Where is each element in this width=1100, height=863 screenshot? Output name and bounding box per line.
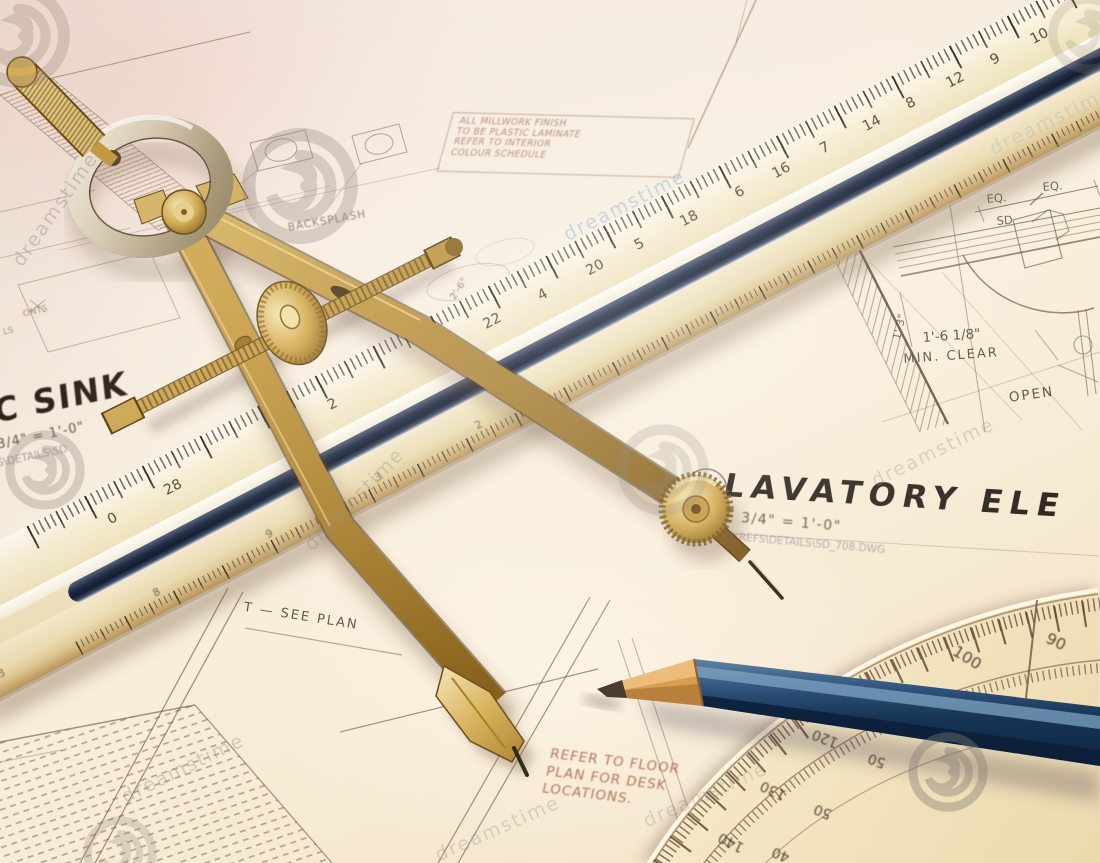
compass-thumbwheel — [244, 270, 339, 375]
pencil-facet-highlight — [695, 666, 1100, 729]
sink-note-fragment: ONTS — [22, 304, 49, 320]
ruler-number: 7 — [817, 139, 833, 157]
ruler-number: 9 — [987, 50, 1003, 68]
protractor-body — [646, 590, 1100, 863]
protractor-number: 140 — [716, 829, 747, 855]
spiral-watermark-icon — [10, 435, 80, 505]
compass-handle — [24, 74, 94, 146]
height-dimension: 1'-3" — [890, 313, 909, 341]
floor-note-line: LOCATIONS. — [540, 780, 673, 813]
backsplash-label: BACKSPLASH — [287, 208, 367, 234]
min-clear-label: MIN. CLEAR — [903, 345, 999, 367]
hinge-left-wing — [134, 190, 172, 224]
protractor-90-tick — [1026, 600, 1037, 698]
ruler-major-ticks — [26, 0, 1100, 549]
protractor-fine-ticks — [658, 604, 1100, 863]
ruler-number: 0 — [105, 510, 121, 528]
protractor-number: 130 — [758, 777, 789, 803]
protractor-number: 50 — [866, 749, 888, 770]
clear-dimension: 1'-6 1/8" — [922, 326, 981, 346]
lavatory-title: LAVATORY ELE — [720, 466, 1069, 524]
compass-blade — [436, 666, 524, 762]
rod-left-cap — [108, 408, 138, 423]
thumbwheel-knurl — [250, 276, 335, 371]
protractor-edge-line — [650, 594, 1098, 863]
protractor-number: 120 — [810, 726, 841, 751]
rod-cap-face — [445, 238, 463, 256]
compass-needle-point — [514, 748, 527, 775]
handle-knurl-texture — [24, 74, 94, 146]
compass-slot — [328, 282, 362, 308]
watermark-text: dreamstime — [8, 148, 103, 270]
pencil-body — [694, 659, 1100, 766]
ruler-bevel-number: 3 — [0, 666, 7, 681]
spiral-watermark-icon — [88, 821, 153, 863]
photo-stage: C SINK 3/4" = 1'-0" S\DETAILS\SD ONTS LS… — [0, 0, 1100, 863]
soap-dispenser-label: SD — [996, 213, 1013, 228]
compass-knurled-nut — [662, 475, 730, 543]
sink-detail-title: C SINK — [0, 364, 130, 431]
spiral-watermark-icon — [623, 430, 704, 511]
compass-needle-holder — [684, 500, 745, 556]
spiral-watermark-icon — [0, 0, 64, 82]
watermark-text: dreamstime — [868, 413, 998, 492]
spiral-watermark-icon — [249, 135, 352, 238]
pencil-facet-shadow — [700, 695, 1100, 766]
rod-right-cap — [430, 247, 454, 259]
handle-end-cap — [7, 57, 37, 87]
floor-note: REFER TO FLOOR PLAN FOR DESK LOCATIONS. — [540, 746, 681, 813]
hinge-right-wing — [196, 174, 248, 212]
protractor-bevel-edge — [646, 590, 1098, 863]
pencil-wood-cone — [621, 659, 703, 706]
compass-hinge — [162, 190, 206, 234]
protractor-major-ticks — [664, 612, 1100, 863]
ruler-number: 2 — [325, 395, 341, 413]
sink-detail-cad-path: S\DETAILS\SD — [0, 443, 69, 470]
protractor-number: 90 — [1043, 628, 1070, 654]
protractor-number-arc — [760, 726, 1100, 863]
spiral-watermark-icon — [913, 737, 983, 807]
open-label: OPEN — [1008, 384, 1055, 406]
floor-note-line: PLAN FOR DESK — [544, 763, 677, 796]
compass-finger-loop — [65, 112, 235, 262]
protractor-number: 100 — [949, 641, 985, 673]
see-plan-note: T — SEE PLAN — [243, 600, 360, 633]
ruler-number: 4 — [535, 286, 551, 304]
architect-scale-ruler: 0 28 2 22 4 20 5 18 6 16 7 14 8 12 9 10 … — [0, 0, 1100, 706]
loop-rivet — [105, 150, 121, 166]
sink-note-fragment-2: LS — [2, 325, 15, 337]
millwork-note-box: ALL MILLWORK FINISH TO BE PLASTIC LAMINA… — [436, 112, 694, 178]
ruler-number: 8 — [903, 94, 919, 112]
pencil — [581, 659, 1100, 802]
protractor-number: 40 — [770, 843, 793, 863]
watermark-text: dreamstime — [432, 791, 563, 863]
ruler-number: 6 — [732, 183, 748, 201]
ruler-number: 5 — [632, 235, 648, 253]
sink-detail-scale: 3/4" = 1'-0" — [0, 420, 86, 453]
protractor-inner-arc — [700, 660, 1100, 863]
protractor-number: 50 — [812, 800, 835, 822]
watermark-text: dreamstime — [118, 729, 248, 808]
watermark-text: dreamstime — [640, 757, 771, 832]
lavatory-scale: CALE 3/4" = 1'-0" — [693, 506, 843, 535]
tile-hatch — [0, 705, 332, 863]
lavatory-cad-path: 9\WO\XREFS\DETAILS\SD_708.DWG — [699, 528, 886, 556]
protractor-inner-ticks — [706, 668, 1100, 863]
compass-lead-point — [750, 562, 782, 598]
nut-knurl — [662, 475, 730, 543]
protractor-shadow — [640, 586, 1094, 862]
eq-dim-right: EQ. — [1042, 178, 1063, 194]
pencil-graphite-tip — [597, 680, 627, 698]
floor-note-line: REFER TO FLOOR — [548, 746, 681, 779]
compass-rivet — [232, 333, 254, 355]
